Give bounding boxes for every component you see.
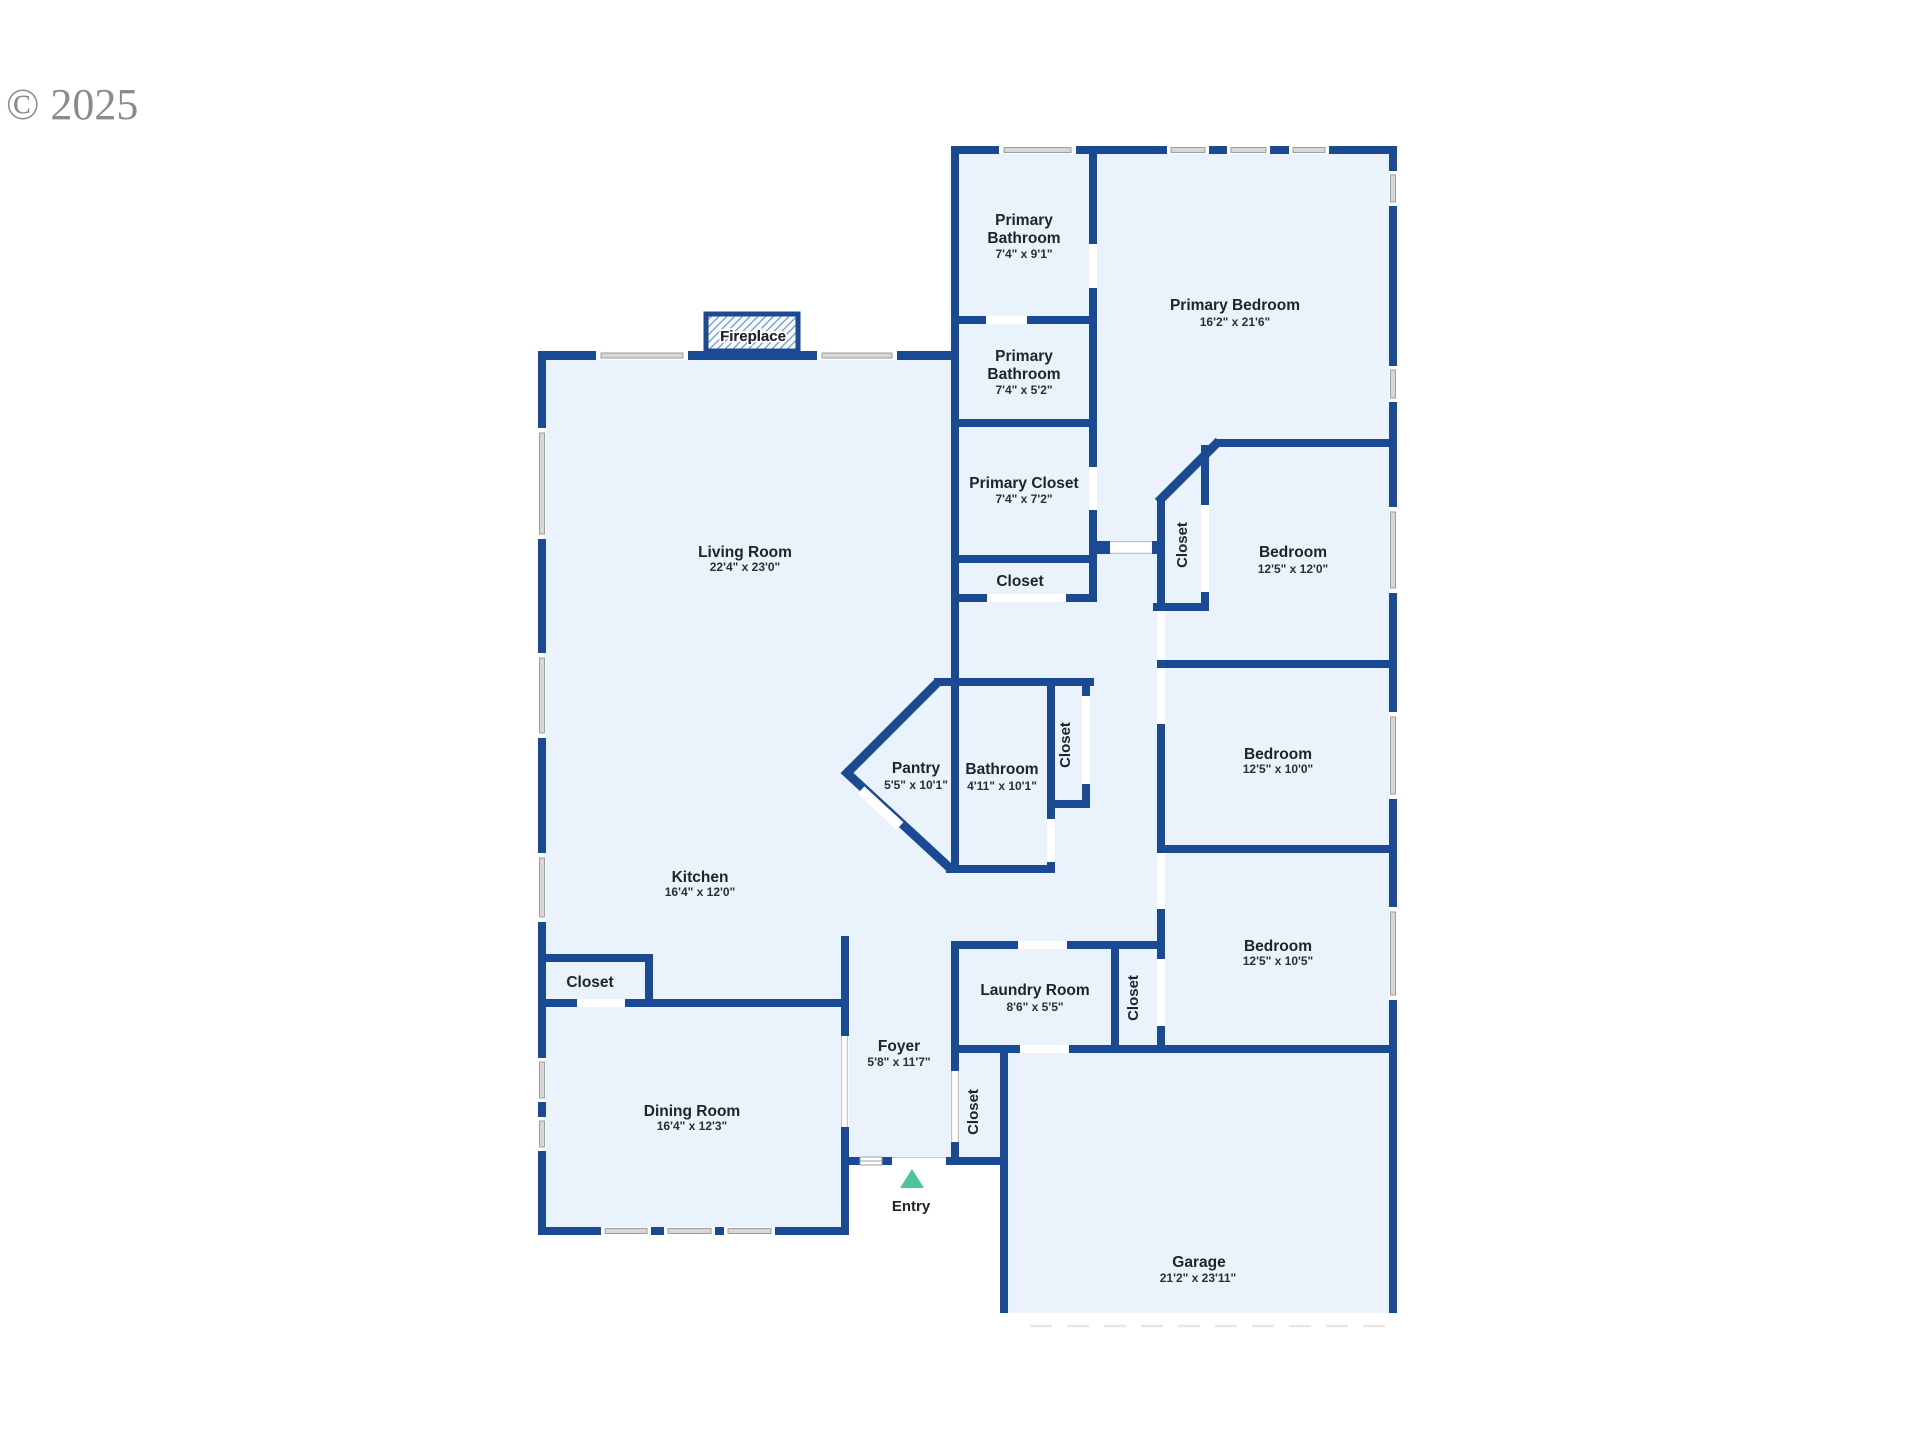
svg-text:Bathroom: Bathroom xyxy=(987,366,1060,383)
svg-text:Primary: Primary xyxy=(995,212,1053,229)
svg-text:7'4" x 7'2": 7'4" x 7'2" xyxy=(995,492,1052,506)
svg-text:Bedroom: Bedroom xyxy=(1244,938,1312,955)
svg-text:Living Room: Living Room xyxy=(698,544,792,561)
svg-text:Fireplace: Fireplace xyxy=(720,328,786,345)
svg-text:Entry: Entry xyxy=(892,1198,931,1215)
svg-text:7'4" x 5'2": 7'4" x 5'2" xyxy=(995,383,1052,397)
svg-text:Garage: Garage xyxy=(1172,1254,1226,1271)
svg-text:Closet: Closet xyxy=(996,573,1043,590)
svg-text:12'5" x 10'0": 12'5" x 10'0" xyxy=(1243,762,1313,776)
svg-text:5'5" x 10'1": 5'5" x 10'1" xyxy=(884,778,948,792)
svg-text:16'2" x 21'6": 16'2" x 21'6" xyxy=(1200,315,1270,329)
svg-text:Closet: Closet xyxy=(965,1089,982,1135)
svg-text:Bathroom: Bathroom xyxy=(965,761,1038,778)
svg-text:21'2" x 23'11": 21'2" x 23'11" xyxy=(1160,1271,1236,1285)
svg-text:Closet: Closet xyxy=(566,974,613,991)
svg-text:Primary: Primary xyxy=(995,348,1053,365)
svg-text:Bedroom: Bedroom xyxy=(1259,544,1327,561)
svg-text:12'5" x 12'0": 12'5" x 12'0" xyxy=(1258,562,1328,576)
svg-text:4'11" x 10'1": 4'11" x 10'1" xyxy=(967,779,1037,793)
svg-text:© 2025: © 2025 xyxy=(6,80,138,129)
svg-text:12'5" x 10'5": 12'5" x 10'5" xyxy=(1243,954,1313,968)
svg-text:16'4" x 12'3": 16'4" x 12'3" xyxy=(657,1119,727,1133)
svg-text:Primary Bedroom: Primary Bedroom xyxy=(1170,297,1300,314)
svg-text:7'4" x 9'1": 7'4" x 9'1" xyxy=(995,247,1052,261)
svg-text:5'8" x 11'7": 5'8" x 11'7" xyxy=(867,1055,930,1069)
svg-text:Primary Closet: Primary Closet xyxy=(969,475,1078,492)
svg-text:Closet: Closet xyxy=(1174,522,1191,568)
svg-text:Closet: Closet xyxy=(1125,975,1142,1021)
svg-text:Kitchen: Kitchen xyxy=(672,869,729,886)
svg-text:Closet: Closet xyxy=(1057,722,1074,768)
svg-text:Bathroom: Bathroom xyxy=(987,230,1060,247)
svg-text:Pantry: Pantry xyxy=(892,760,941,777)
svg-text:Foyer: Foyer xyxy=(878,1038,920,1055)
svg-text:Laundry Room: Laundry Room xyxy=(980,982,1089,999)
svg-text:Dining Room: Dining Room xyxy=(644,1103,740,1120)
svg-text:16'4" x 12'0": 16'4" x 12'0" xyxy=(665,885,735,899)
svg-text:Bedroom: Bedroom xyxy=(1244,746,1312,763)
svg-text:8'6" x 5'5": 8'6" x 5'5" xyxy=(1006,1000,1063,1014)
svg-text:22'4" x 23'0": 22'4" x 23'0" xyxy=(710,560,780,574)
